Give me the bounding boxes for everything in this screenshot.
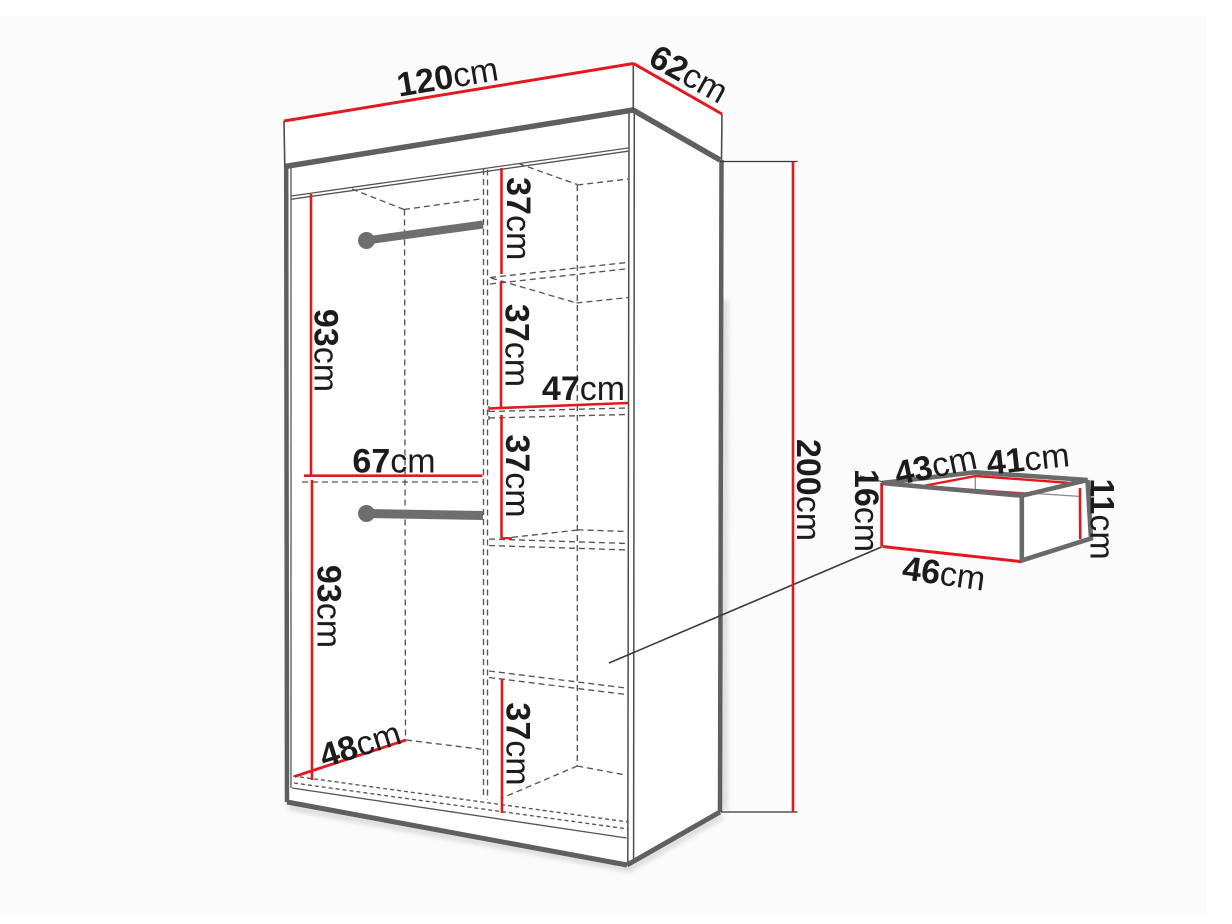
svg-text:47cm: 47cm <box>542 370 625 408</box>
svg-text:93cm: 93cm <box>310 565 348 648</box>
svg-text:16cm: 16cm <box>847 469 885 552</box>
svg-text:200cm: 200cm <box>789 439 827 541</box>
svg-text:37cm: 37cm <box>498 304 536 387</box>
svg-text:37cm: 37cm <box>499 702 537 785</box>
svg-text:93cm: 93cm <box>307 309 345 392</box>
svg-text:37cm: 37cm <box>498 434 536 517</box>
svg-text:37cm: 37cm <box>499 177 537 260</box>
svg-text:67cm: 67cm <box>352 443 435 481</box>
svg-text:11cm: 11cm <box>1083 478 1121 559</box>
